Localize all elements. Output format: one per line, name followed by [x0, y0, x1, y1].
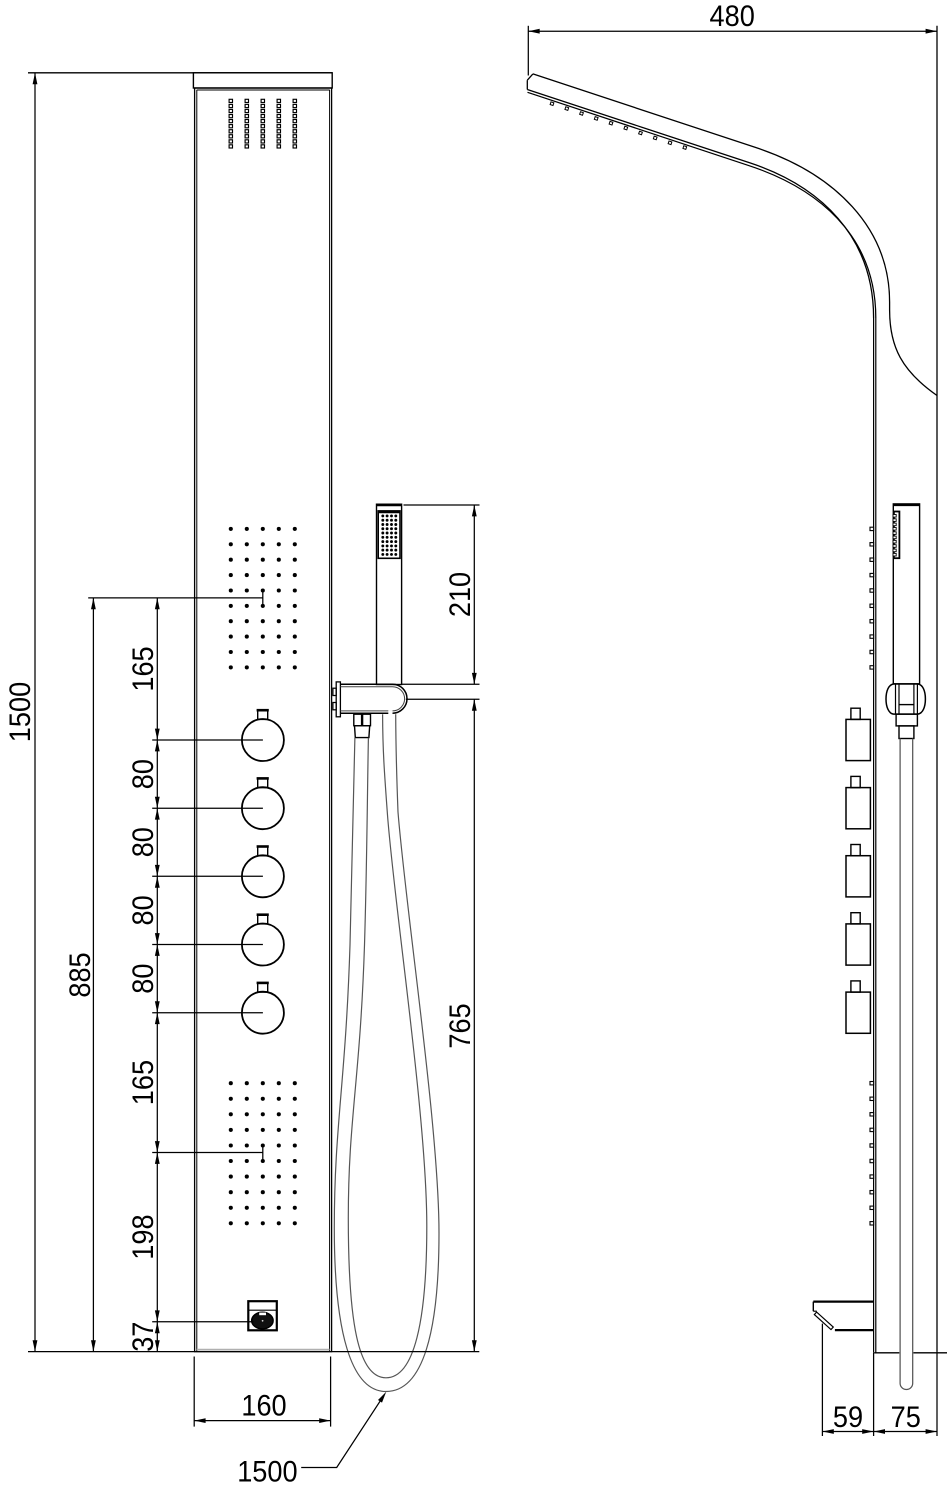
svg-text:1500: 1500: [237, 1455, 297, 1488]
svg-text:80: 80: [127, 895, 161, 925]
svg-text:80: 80: [127, 759, 161, 789]
svg-text:210: 210: [444, 572, 478, 617]
svg-text:165: 165: [127, 1060, 161, 1105]
svg-text:885: 885: [64, 952, 98, 997]
svg-text:198: 198: [127, 1214, 161, 1259]
svg-text:160: 160: [241, 1389, 286, 1423]
svg-text:37: 37: [127, 1322, 161, 1352]
svg-text:80: 80: [127, 963, 161, 993]
svg-text:59: 59: [833, 1401, 863, 1435]
svg-text:165: 165: [127, 646, 161, 691]
svg-text:80: 80: [127, 827, 161, 857]
svg-text:765: 765: [444, 1003, 478, 1048]
svg-text:480: 480: [710, 0, 755, 33]
svg-text:1500: 1500: [4, 682, 38, 742]
svg-text:75: 75: [891, 1401, 921, 1435]
